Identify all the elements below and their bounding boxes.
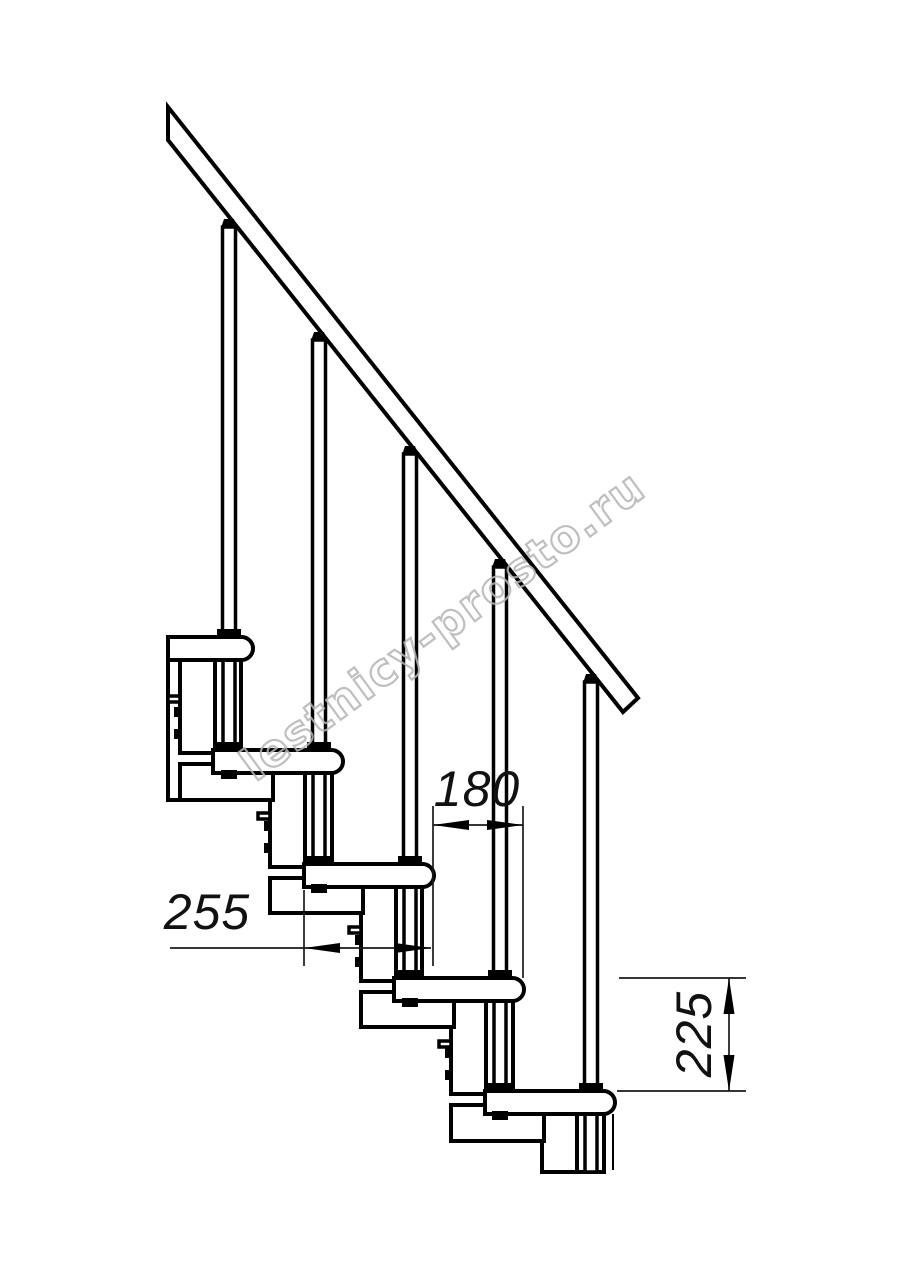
module-web-3: [361, 887, 396, 981]
web-tab: [258, 813, 270, 819]
baluster-5: [585, 682, 598, 1094]
rod-foot-pad: [487, 1083, 513, 1092]
dimension-tread-depth-value: 255: [163, 884, 250, 940]
web-tab: [168, 696, 180, 702]
module-web-1: [180, 660, 215, 753]
tread-bolt-nut: [221, 770, 237, 779]
web-tab: [439, 1041, 451, 1047]
dim-arrow-left: [433, 820, 469, 830]
module-web-4: [451, 1001, 486, 1094]
baluster-pad: [217, 629, 241, 638]
dim-arrow-bottom: [724, 1055, 735, 1091]
baluster-rod-5: [585, 1114, 597, 1172]
web-bolt: [264, 821, 271, 831]
module-web-2: [270, 773, 305, 867]
dimension-going-value: 180: [434, 761, 520, 817]
web-tab: [349, 927, 361, 933]
web-bolt: [174, 707, 181, 717]
web-bolt: [264, 843, 271, 853]
rod-foot-pad: [306, 856, 332, 865]
web-bolt: [445, 1048, 452, 1058]
baluster-pad: [398, 856, 422, 865]
tread-3: [304, 864, 434, 887]
tread-bolt-nut: [492, 1111, 508, 1120]
tread-bolt-nut: [402, 998, 418, 1007]
baluster-pad: [579, 1083, 603, 1092]
dimension-rise: 225: [617, 978, 746, 1091]
web-bolt: [355, 935, 362, 945]
baluster-pad: [488, 970, 512, 979]
baluster-1: [223, 227, 236, 640]
dim-arrow-top: [724, 978, 735, 1014]
staircase-drawing-page: 180 255 225 lestnicy-prosto.ru: [0, 0, 914, 1280]
module-web-5: [542, 1114, 577, 1172]
baluster-rod-4: [494, 1001, 506, 1091]
baluster-rod-1: [223, 660, 235, 750]
tread-1: [168, 637, 253, 660]
rod-foot-pad: [397, 970, 423, 979]
staircase-side-view-drawing: 180 255 225 lestnicy-prosto.ru: [0, 0, 914, 1280]
baluster-rod-2: [313, 773, 325, 864]
baluster-rod-3: [404, 887, 416, 978]
dimension-going: 180: [433, 761, 523, 978]
tread-4: [394, 978, 524, 1001]
dimension-rise-value: 225: [666, 991, 722, 1078]
tread-bolt-nut: [311, 884, 327, 893]
web-bolt: [445, 1070, 452, 1080]
web-bolt: [355, 957, 362, 967]
web-bolt: [174, 729, 181, 739]
dim-arrow-left: [304, 943, 340, 953]
tread-5: [485, 1091, 615, 1114]
